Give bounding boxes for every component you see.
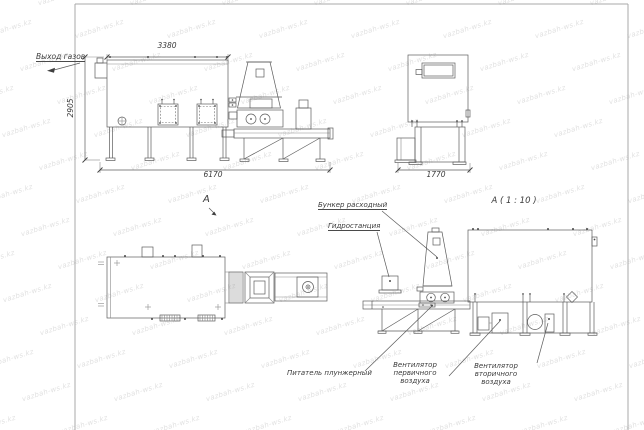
feeder-box	[229, 110, 283, 127]
pedestal	[415, 127, 465, 162]
sheet-frame	[75, 4, 628, 430]
hopper-top-view	[245, 272, 274, 303]
right-column	[296, 108, 311, 129]
view-front-elevation	[95, 58, 333, 162]
callout-primary-fan: Вентилятор первичного воздуха	[378, 361, 452, 385]
callout-secondary-fan: Вентилятор вторичного воздуха	[459, 362, 533, 386]
view-detail-a	[363, 228, 597, 335]
callout-leaders	[365, 211, 548, 376]
cad-linework	[0, 0, 644, 430]
primary-air-fan	[478, 313, 508, 333]
side-box	[397, 138, 415, 160]
conveyor-truss	[240, 138, 325, 162]
detail-hopper-tower	[417, 228, 452, 291]
view-plan	[98, 245, 327, 321]
anchor-diamond	[567, 292, 578, 303]
secondary-air-fan	[528, 314, 555, 332]
dim-2905: 2905	[67, 98, 75, 117]
hatch-door	[197, 99, 217, 125]
dim-3380: 3380	[157, 42, 176, 50]
section-a-label: А	[203, 196, 210, 204]
detail-furnace-body	[468, 230, 592, 302]
dim-1770: 1770	[426, 171, 445, 179]
round-fitting	[118, 117, 126, 125]
detail-feeder-box	[420, 292, 454, 303]
callout-plunger-feeder: Питатель плунжерный	[287, 369, 372, 377]
furnace-body	[107, 60, 228, 127]
hatch-door	[158, 99, 178, 125]
detail-a-title: А ( 1 : 10 )	[491, 197, 536, 205]
callout-hopper: Бункер расходный	[318, 201, 387, 210]
view-end-elevation	[395, 55, 473, 173]
section-a-arrow	[209, 208, 217, 216]
detail-truss	[378, 309, 459, 333]
hydraulic-station	[379, 276, 401, 293]
conveyor-top-view	[275, 273, 327, 301]
gas-outlet-label: Выход газов	[36, 53, 85, 62]
gas-outlet-stub	[95, 63, 107, 78]
bellows-flange	[225, 272, 243, 303]
callout-hydro-station: Гидростанция	[328, 222, 380, 231]
drawing-sheet: vazbah-ws.kzvazbah-ws.kzvazbah-ws.kzvazb…	[0, 0, 644, 430]
dim-6170: 6170	[203, 171, 222, 179]
plan-body	[107, 257, 225, 318]
hopper-tower	[229, 62, 282, 108]
conveyor	[222, 100, 333, 139]
support-legs	[106, 127, 229, 161]
